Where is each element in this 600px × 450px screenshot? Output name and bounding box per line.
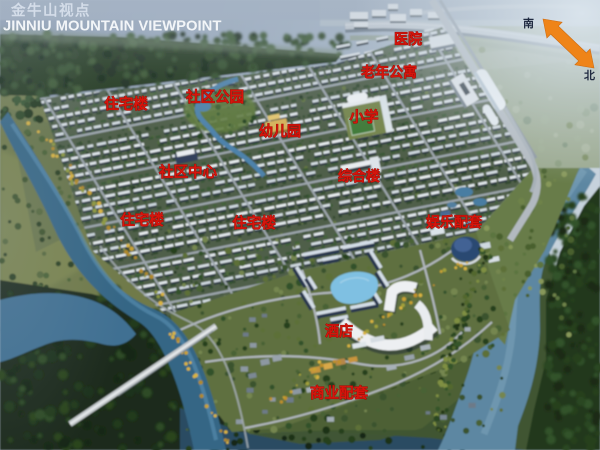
svg-text:社区中心: 社区中心 <box>158 163 217 181</box>
svg-text:酒店: 酒店 <box>325 323 353 339</box>
svg-text:社区公园: 社区公园 <box>185 88 244 106</box>
svg-text:老年公寓: 老年公寓 <box>361 64 417 80</box>
svg-text:住宅楼: 住宅楼 <box>232 214 276 232</box>
svg-text:金牛山视点: 金牛山视点 <box>10 2 91 20</box>
svg-text:小学: 小学 <box>350 108 379 126</box>
svg-text:幼儿园: 幼儿园 <box>259 123 301 139</box>
svg-text:南: 南 <box>523 16 534 30</box>
svg-text:住宅楼: 住宅楼 <box>120 211 164 229</box>
svg-text:住宅楼: 住宅楼 <box>104 95 148 113</box>
svg-text:医院: 医院 <box>394 31 422 47</box>
svg-text:JINNIU MOUNTAIN VIEWPOINT: JINNIU MOUNTAIN VIEWPOINT <box>3 19 221 35</box>
svg-text:综合楼: 综合楼 <box>338 168 380 184</box>
svg-text:商业配套: 商业配套 <box>310 384 368 402</box>
svg-text:娱乐配套: 娱乐配套 <box>426 214 482 230</box>
svg-text:北: 北 <box>584 68 595 82</box>
